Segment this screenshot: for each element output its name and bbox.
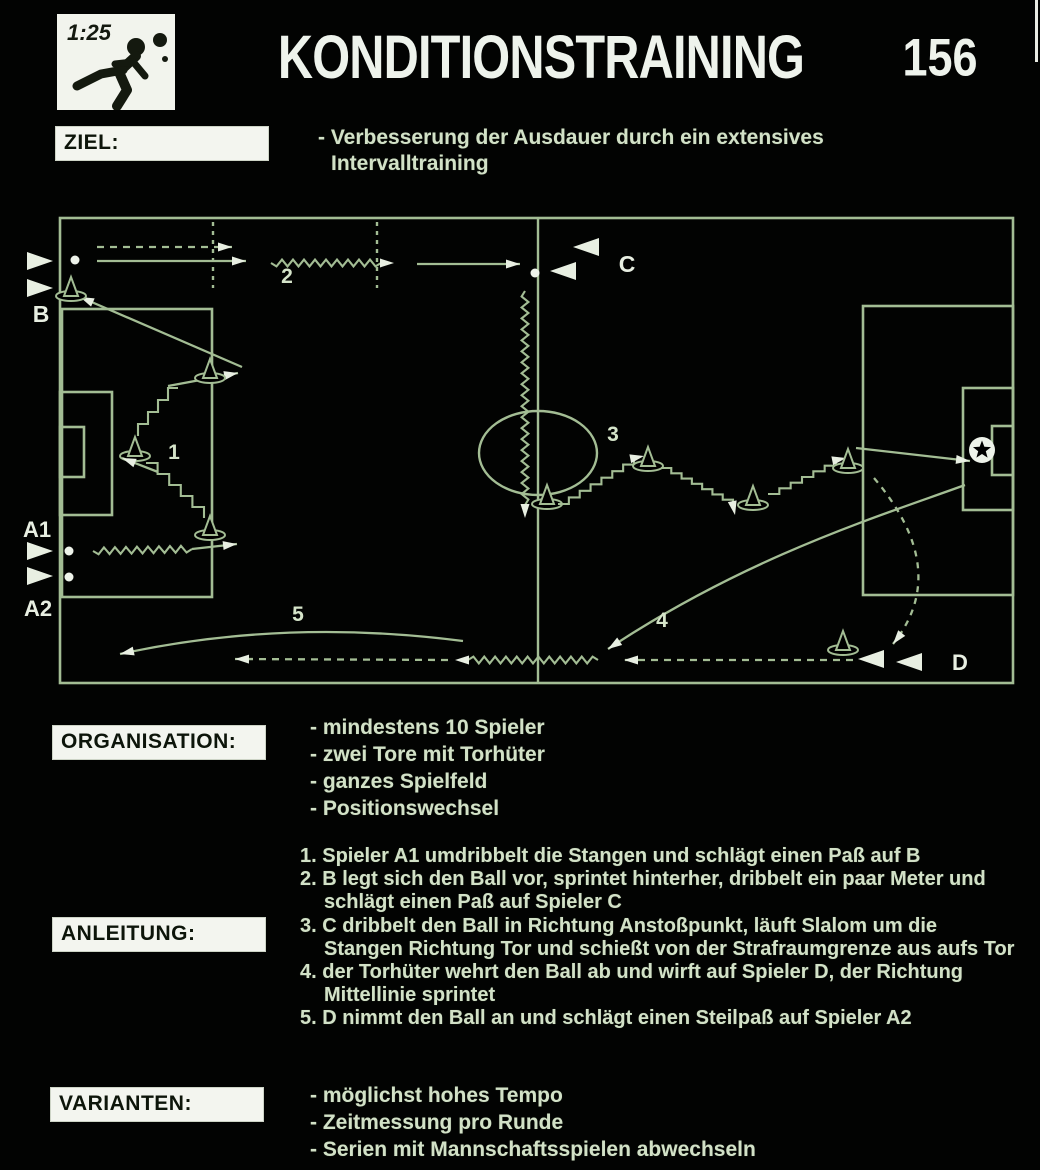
training-card-page: { "header": { "clock": "1:25", "title": … <box>0 0 1040 1170</box>
player-label: C <box>619 251 636 277</box>
arrowhead-icon <box>506 260 520 269</box>
list-item: - mindestens 10 Spieler <box>310 714 545 741</box>
arrowhead-icon <box>455 656 469 665</box>
cone-icon <box>203 359 217 378</box>
arrowhead-icon <box>120 647 135 656</box>
player-marker <box>550 262 576 280</box>
slalom-path <box>768 460 836 494</box>
path-number-label: 4 <box>656 609 668 632</box>
list-item: 5. D nimmt den Ball an und schlägt einen… <box>300 1007 1020 1030</box>
list-item: 1. Spieler A1 umdribbelt die Stangen und… <box>300 845 1020 868</box>
arrowhead-icon <box>232 257 246 266</box>
cone-icon <box>746 486 760 505</box>
dribble-path <box>468 657 598 664</box>
path-number-label: 3 <box>607 423 619 446</box>
arrowhead-icon <box>122 458 137 467</box>
dribble-path <box>93 546 192 554</box>
cone-icon <box>64 277 78 296</box>
list-item: - möglichst hohes Tempo <box>310 1082 756 1109</box>
list-item: - Zeitmessung pro Runde <box>310 1109 756 1136</box>
arrowhead-icon <box>235 655 249 664</box>
ball-icon <box>531 269 540 278</box>
ball-icon <box>71 256 80 265</box>
anleitung-label: ANLEITUNG: <box>52 917 266 952</box>
player-marker <box>896 653 922 671</box>
path-number-label: 1 <box>168 441 180 464</box>
list-item: - Positionswechsel <box>310 795 545 822</box>
pitch-line-rect <box>60 392 112 515</box>
arrowhead-icon <box>380 259 394 268</box>
arrowhead-icon <box>218 243 232 252</box>
varianten-label: VARIANTEN: <box>50 1087 264 1122</box>
list-item: - zwei Tore mit Torhüter <box>310 741 545 768</box>
cone-icon <box>128 437 142 456</box>
path-number-label: 5 <box>292 603 304 626</box>
pitch-line-rect <box>992 426 1013 475</box>
dribble-path <box>522 291 529 505</box>
arrowhead-icon <box>608 638 622 649</box>
ball-icon <box>65 547 74 556</box>
pass-path <box>856 448 970 461</box>
varianten-list: - möglichst hohes Tempo- Zeitmessung pro… <box>310 1082 756 1163</box>
player-marker <box>27 567 53 585</box>
player-marker <box>27 252 53 270</box>
pitch-line-rect <box>60 427 84 477</box>
player-label: D <box>952 650 968 675</box>
organisation-list: - mindestens 10 Spieler- zwei Tore mit T… <box>310 714 545 822</box>
player-marker <box>27 542 53 560</box>
arrowhead-icon <box>624 656 638 665</box>
arrowhead-icon <box>728 500 737 515</box>
cone-icon <box>836 631 850 650</box>
slalom-path <box>661 468 733 505</box>
list-item: - Serien mit Mannschaftsspielen abwechse… <box>310 1136 756 1163</box>
cone-icon <box>203 516 217 535</box>
list-item: - ganzes Spielfeld <box>310 768 545 795</box>
sprint-path <box>235 659 448 660</box>
ball-icon <box>65 573 74 582</box>
slalom-path <box>138 388 178 436</box>
list-item: 4. der Torhüter wehrt den Ball ab und wi… <box>300 961 1020 1007</box>
arrowhead-icon <box>223 541 237 550</box>
arrowhead-icon <box>893 630 905 644</box>
organisation-label: ORGANISATION: <box>52 725 266 760</box>
player-marker <box>858 650 884 668</box>
pass-path <box>80 297 242 367</box>
arrowhead-icon <box>521 504 530 518</box>
anleitung-list: 1. Spieler A1 umdribbelt die Stangen und… <box>300 845 1020 1031</box>
list-item: 2. B legt sich den Ball vor, sprintet hi… <box>300 868 1020 914</box>
player-label: A2 <box>24 596 52 621</box>
pass-curve <box>120 632 463 654</box>
player-marker <box>573 238 599 256</box>
list-item: 3. C dribbelt den Ball in Richtung Ansto… <box>300 915 1020 961</box>
path-number-label: 2 <box>281 265 293 288</box>
player-label: B <box>33 301 50 327</box>
player-label: A1 <box>23 517 51 542</box>
player-marker <box>27 279 53 297</box>
